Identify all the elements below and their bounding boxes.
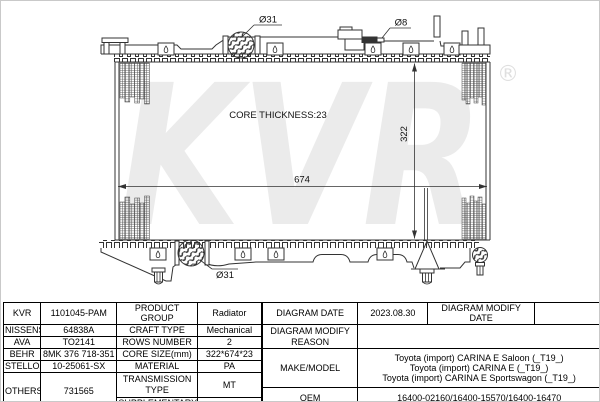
brand-name: STELLOX bbox=[4, 360, 41, 372]
table-row: DIAGRAM MODIFY REASON bbox=[263, 324, 600, 348]
spec-label: ROWS NUMBER bbox=[117, 336, 197, 348]
svg-text:322: 322 bbox=[399, 126, 410, 142]
spec-value: PA bbox=[197, 360, 261, 372]
make-model-value: Toyota (import) CARINA E Saloon (_T19_) … bbox=[358, 349, 600, 388]
brand-part-number: 1101045-PAM bbox=[41, 303, 117, 325]
svg-text:KVR: KVR bbox=[119, 43, 484, 270]
diagram-modify-date-label: DIAGRAM MODIFY DATE bbox=[428, 303, 534, 325]
table-row: NISSENS 64838A CRAFT TYPE Mechanical bbox=[4, 324, 262, 336]
make-model-label: MAKE/MODEL bbox=[263, 349, 358, 388]
brand-name: NISSENS bbox=[4, 324, 41, 336]
fin-block-top-left bbox=[120, 63, 149, 104]
right-mount-tabs bbox=[459, 28, 490, 54]
brand-part-number: 8MK 376 718-351 bbox=[41, 348, 117, 360]
table-row: AVA TO2141 ROWS NUMBER 2 bbox=[4, 336, 262, 348]
kvr-watermark: KVR ® bbox=[119, 43, 520, 270]
radiator-top-view: Ø31 Ø8 bbox=[101, 15, 490, 63]
spec-value: Radiator bbox=[197, 303, 261, 325]
svg-text:Ø31: Ø31 bbox=[216, 270, 234, 281]
brand-name: AVA bbox=[4, 336, 41, 348]
table-row: MAKE/MODEL Toyota (import) CARINA E Salo… bbox=[263, 349, 600, 388]
svg-text:Ø31: Ø31 bbox=[259, 15, 277, 26]
diagram-modify-date-value bbox=[534, 303, 600, 325]
brand-part-number: 64838A bbox=[41, 324, 117, 336]
vent-pipe-callout: Ø8 bbox=[382, 18, 411, 39]
spec-value: 322*674*23 bbox=[197, 348, 261, 360]
brand-part-number: TO2141 bbox=[41, 336, 117, 348]
spec-label: PRODUCT GROUP bbox=[117, 303, 197, 325]
brand-part-number: 731565 bbox=[41, 372, 117, 402]
spec-label: MATERIAL bbox=[117, 360, 197, 372]
spec-label: CORE SIZE(mm) bbox=[117, 348, 197, 360]
svg-text:674: 674 bbox=[294, 175, 310, 186]
spec-value bbox=[197, 397, 261, 402]
registered-mark-icon: ® bbox=[497, 62, 519, 87]
table-row: DIAGRAM DATE 2023.08.30 DIAGRAM MODIFY D… bbox=[263, 303, 600, 325]
fin-block-top-right bbox=[462, 63, 486, 105]
oem-value: 16400-02160/16400-15570/16400-16470 bbox=[358, 388, 600, 402]
catalog-page: KVR ® bbox=[0, 0, 600, 402]
brand-part-number: 10-25061-SX bbox=[41, 360, 117, 372]
bottom-header-teeth bbox=[99, 240, 479, 248]
fin-block-bottom-left bbox=[120, 196, 149, 239]
left-mount-tabs bbox=[102, 38, 128, 54]
spec-table: KVR 1101045-PAM PRODUCT GROUP Radiator N… bbox=[3, 302, 600, 402]
brand-name: OTHERS bbox=[4, 372, 41, 402]
spec-value: Mechanical bbox=[197, 324, 261, 336]
table-row: OTHERS 731565 TRANSMISSION TYPE MT bbox=[4, 372, 262, 397]
svg-text:Ø8: Ø8 bbox=[395, 18, 408, 29]
radiator-diagram: KVR ® bbox=[1, 1, 600, 301]
make-model-line: Toyota (import) CARINA E Saloon (_T19_) bbox=[359, 353, 599, 363]
info-table: DIAGRAM DATE 2023.08.30 DIAGRAM MODIFY D… bbox=[262, 302, 600, 402]
diagram-date-label: DIAGRAM DATE bbox=[263, 303, 358, 325]
table-row: STELLOX 10-25061-SX MATERIAL PA bbox=[4, 360, 262, 372]
diagram-modify-reason-label: DIAGRAM MODIFY REASON bbox=[263, 324, 358, 348]
spec-value: 2 bbox=[197, 336, 261, 348]
table-row: KVR 1101045-PAM PRODUCT GROUP Radiator bbox=[4, 303, 262, 325]
spec-label: SUPPLEMENTARY bbox=[117, 397, 197, 402]
spec-value: MT bbox=[197, 372, 261, 397]
table-row: BEHR 8MK 376 718-351 CORE SIZE(mm) 322*6… bbox=[4, 348, 262, 360]
cross-reference-table: KVR 1101045-PAM PRODUCT GROUP Radiator N… bbox=[3, 302, 262, 402]
brand-name: KVR bbox=[4, 303, 41, 325]
diagram-modify-reason-value bbox=[358, 324, 600, 348]
table-row: OEM 16400-02160/16400-15570/16400-16470 bbox=[263, 388, 600, 402]
vent-pipe bbox=[362, 37, 384, 43]
brand-name: BEHR bbox=[4, 348, 41, 360]
spec-label: TRANSMISSION TYPE bbox=[117, 372, 197, 397]
make-model-line: Toyota (import) CARINA E (_T19_) bbox=[359, 363, 599, 373]
pin-post bbox=[434, 16, 440, 37]
oem-label: OEM bbox=[263, 388, 358, 402]
make-model-line: Toyota (import) CARINA E Sportswagon (_T… bbox=[359, 373, 599, 383]
core-thickness-label: CORE THICKNESS:23 bbox=[229, 110, 327, 121]
diagram-date-value: 2023.08.30 bbox=[358, 303, 428, 325]
spec-label: CRAFT TYPE bbox=[117, 324, 197, 336]
